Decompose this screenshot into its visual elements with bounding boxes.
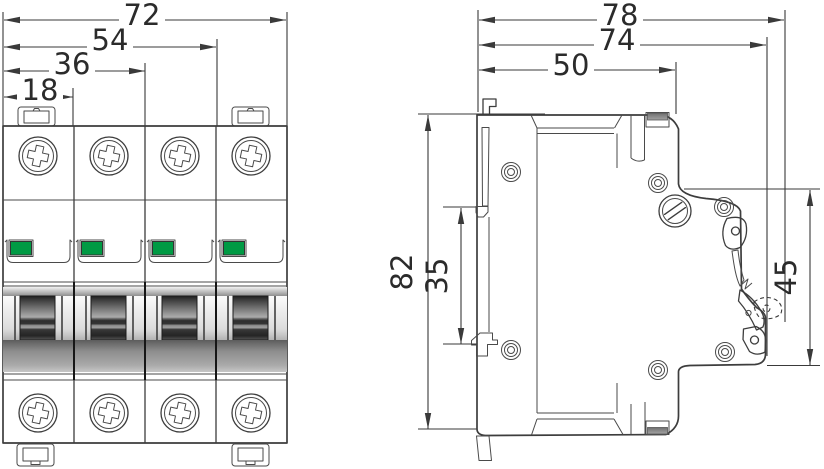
toggle-handle <box>162 296 197 340</box>
mounting-tab-bottom-right <box>232 444 269 466</box>
dim-front-face-height: 45 <box>769 190 813 365</box>
dim-body-depth: 74 <box>479 23 766 57</box>
mounting-tab-top-right <box>232 107 269 126</box>
toggle-tip-bar <box>648 113 668 120</box>
toggle-handle <box>20 296 55 340</box>
dim-label-74: 74 <box>599 23 636 57</box>
mcb-dimensional-drawing: 72 54 36 18 <box>0 0 824 469</box>
power-indicator-green <box>224 242 245 256</box>
power-indicator-green <box>11 242 32 256</box>
dim-one-module: 18 <box>4 73 73 107</box>
toggle-handle <box>233 296 268 340</box>
dim-label-45: 45 <box>769 259 803 296</box>
spring-clip-tab <box>477 436 492 461</box>
toggle-tip-bar <box>648 428 668 435</box>
dim-three-modules: 54 <box>4 23 216 57</box>
dim-label-50: 50 <box>553 48 590 82</box>
mounting-tab-top-left <box>18 107 55 126</box>
dim-label-54: 54 <box>92 23 129 57</box>
mounting-tab-bottom-left <box>17 444 54 466</box>
power-indicator-green <box>153 242 174 256</box>
dim-label-18: 18 <box>22 73 59 107</box>
side-view: 78 74 50 82 35 <box>385 0 820 461</box>
dim-label-82: 82 <box>385 254 419 291</box>
dim-front-depth: 50 <box>479 48 675 82</box>
dim-label-35: 35 <box>420 258 454 295</box>
power-indicator-green <box>82 242 103 256</box>
drawing-canvas: 72 54 36 18 <box>0 0 824 469</box>
front-view: 72 54 36 18 <box>3 0 287 466</box>
top-hook <box>483 99 496 115</box>
toggle-handle <box>91 296 126 340</box>
dim-label-36: 36 <box>54 47 91 81</box>
dim-overall-width: 72 <box>4 0 286 32</box>
breaker-body-side <box>477 115 766 436</box>
dim-rail-slot: 35 <box>420 208 464 344</box>
